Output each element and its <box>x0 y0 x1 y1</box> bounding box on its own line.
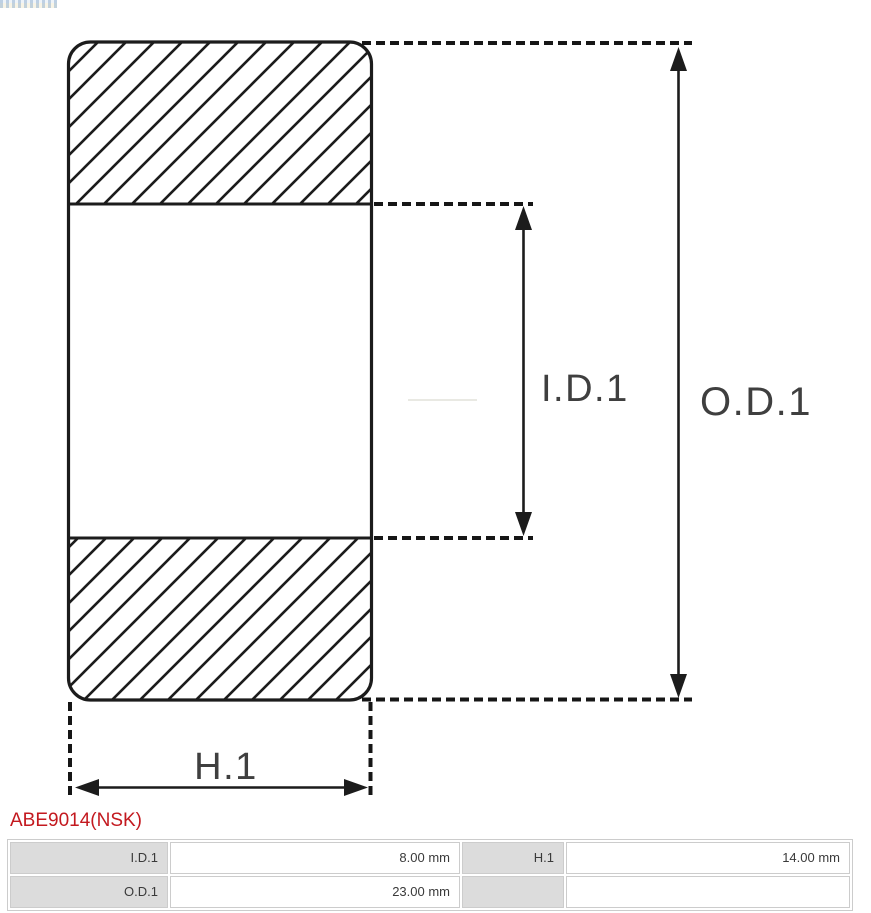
spec-label-cell: O.D.1 <box>10 876 168 908</box>
spec-value-cell <box>566 876 850 908</box>
spec-label-cell: H.1 <box>462 842 564 874</box>
id-dimension-arrow <box>515 206 532 536</box>
od-label: O.D.1 <box>700 380 812 424</box>
spec-table-row: I.D.1 8.00 mm H.1 14.00 mm <box>10 842 850 874</box>
spec-table-row: O.D.1 23.00 mm <box>10 876 850 908</box>
id-label: I.D.1 <box>541 368 629 410</box>
bearing-diagram: I.D.1 O.D.1 H.1 <box>0 0 871 810</box>
spec-value-cell: 8.00 mm <box>170 842 460 874</box>
h-label: H.1 <box>194 746 258 788</box>
spec-table: I.D.1 8.00 mm H.1 14.00 mm O.D.1 23.00 m… <box>7 839 853 911</box>
spec-value-cell: 14.00 mm <box>566 842 850 874</box>
bearing-hatch-bottom <box>69 538 372 700</box>
bearing-hatch-top <box>69 42 372 204</box>
od-dimension-arrow <box>670 47 687 698</box>
spec-value-cell: 23.00 mm <box>170 876 460 908</box>
spec-label-cell <box>462 876 564 908</box>
spec-label-cell: I.D.1 <box>10 842 168 874</box>
product-code: ABE9014(NSK) <box>10 810 142 832</box>
